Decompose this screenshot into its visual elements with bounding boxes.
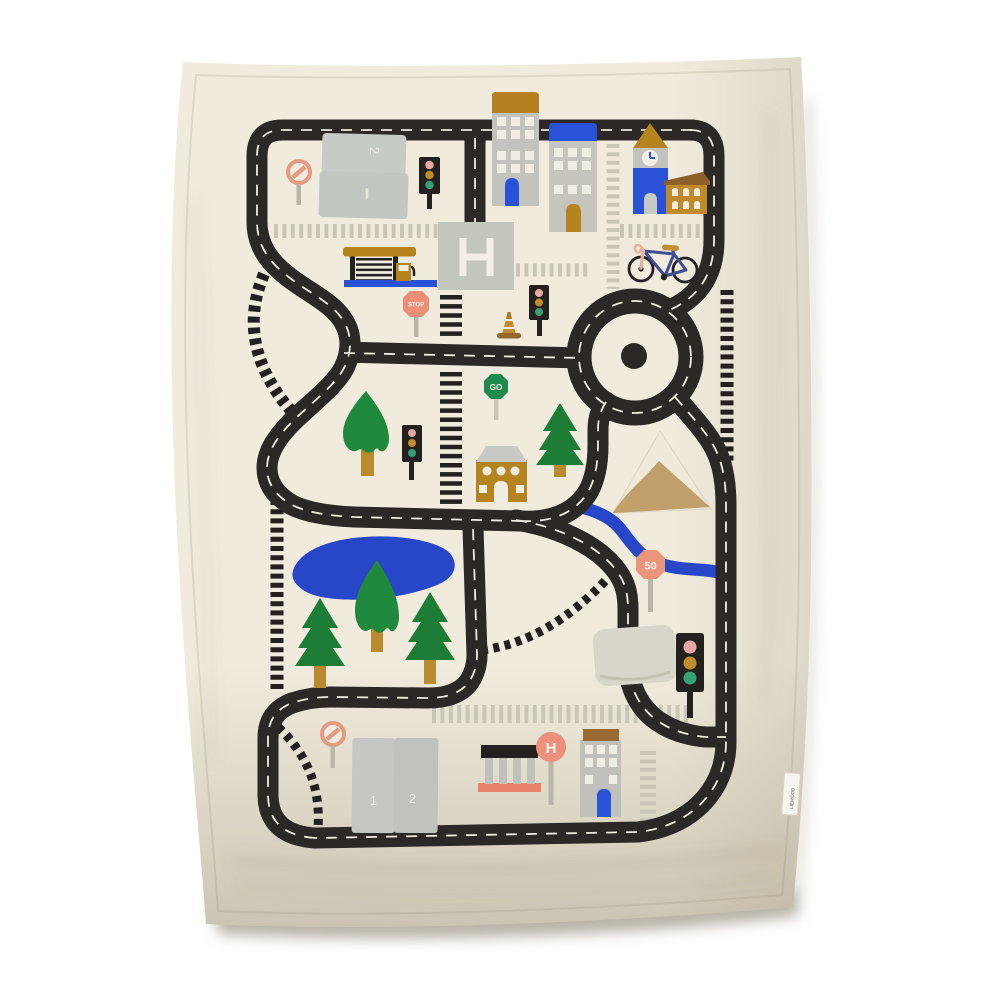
svg-text:GO: GO	[490, 383, 502, 392]
svg-text:STOP: STOP	[408, 303, 424, 309]
svg-text:50: 50	[644, 561, 656, 573]
svg-text:1: 1	[370, 794, 377, 808]
svg-text:H: H	[546, 740, 557, 757]
svg-text:2: 2	[409, 792, 416, 806]
svg-text:2: 2	[367, 147, 382, 154]
